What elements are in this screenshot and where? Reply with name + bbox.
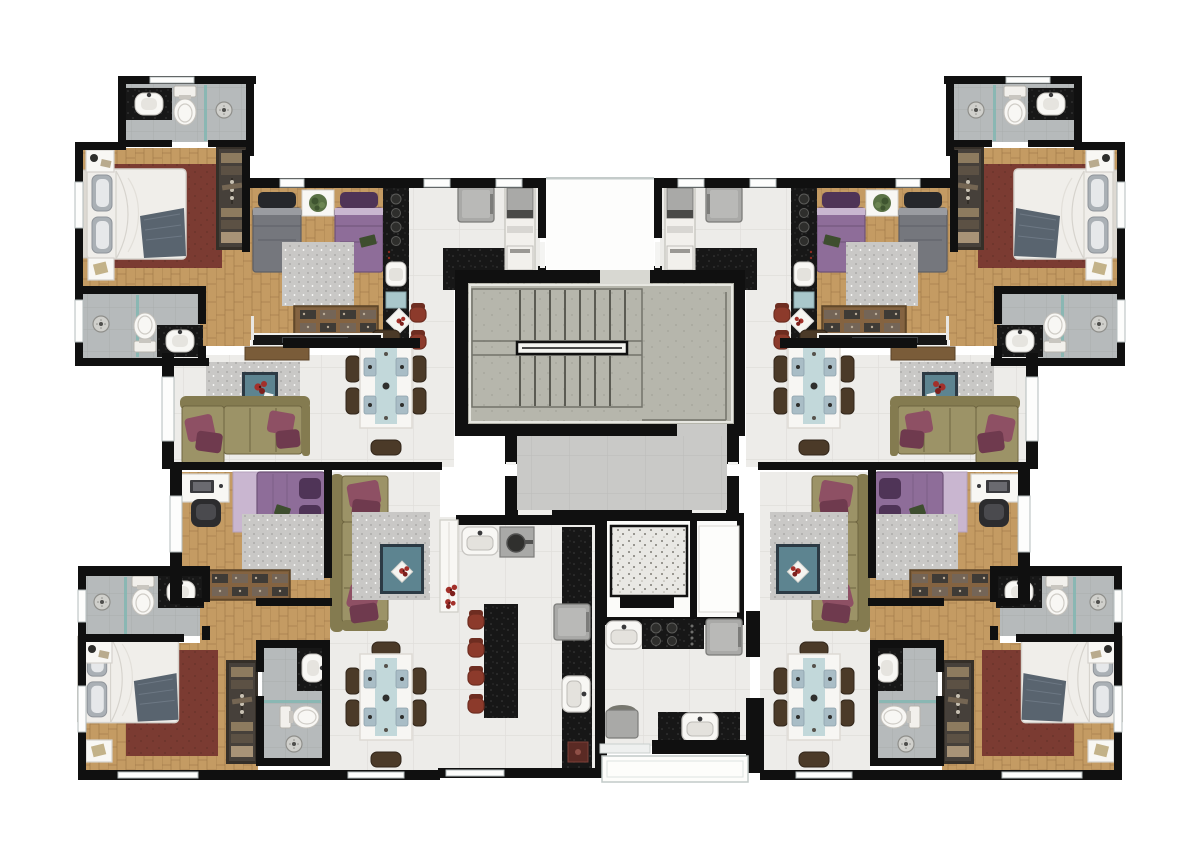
kitchen-island	[484, 604, 518, 718]
fridge	[706, 619, 742, 655]
shower-head	[286, 736, 302, 752]
stair-hall-opening	[677, 424, 727, 436]
service-shaft	[699, 526, 739, 612]
corridor-floor	[200, 604, 330, 642]
toilet	[174, 86, 196, 125]
balcony	[602, 756, 748, 782]
toilet	[132, 576, 154, 615]
washer	[606, 705, 638, 738]
threshold	[600, 744, 650, 753]
nightstand	[86, 150, 114, 172]
nightstand	[84, 641, 112, 663]
window	[446, 770, 504, 776]
toilet	[280, 706, 319, 728]
dish-rack	[386, 292, 406, 308]
washer-column	[505, 184, 535, 276]
fridge	[554, 604, 590, 640]
toilet	[134, 313, 156, 352]
counter-sink	[562, 676, 590, 712]
stair-door-opening	[600, 270, 650, 284]
vanity-sink	[126, 88, 172, 120]
floorplan-canvas	[0, 0, 1200, 843]
bar-stool	[410, 303, 426, 322]
door-leaf	[540, 242, 545, 268]
tile-accent	[263, 700, 321, 703]
oven-window	[575, 749, 581, 755]
kitchen-sink	[606, 621, 642, 649]
counter-sink	[682, 713, 718, 741]
corridor-window-line	[546, 177, 654, 180]
shower-head	[94, 594, 110, 610]
tile-accent	[204, 85, 207, 141]
elevator-cab-floor	[611, 526, 687, 596]
gray-rug	[282, 242, 354, 306]
double-bed	[82, 169, 186, 259]
elevator-door	[620, 596, 674, 608]
shoe-dresser	[206, 570, 290, 600]
wardrobe	[226, 660, 258, 764]
console	[245, 347, 309, 360]
sofa	[180, 396, 310, 464]
shower-head	[216, 102, 232, 118]
fridge	[458, 186, 494, 222]
entry-corridor-floor	[546, 178, 654, 278]
hall-floor	[517, 436, 727, 512]
cooktop	[500, 527, 534, 557]
door-leaf	[506, 462, 516, 465]
white-cabinet	[440, 520, 458, 612]
pouf	[88, 258, 114, 280]
shower-head	[93, 316, 109, 332]
door-leaf	[728, 462, 738, 465]
door-leaf	[251, 316, 254, 340]
kitchen-counter	[562, 527, 592, 768]
tile-accent	[124, 577, 127, 635]
pouf	[86, 740, 112, 762]
vanity-sink	[157, 325, 203, 357]
plant	[309, 194, 327, 212]
shaft-divider	[690, 521, 697, 617]
coffee-table	[380, 544, 424, 594]
floorplan-page	[0, 0, 1200, 843]
entry-floor	[408, 278, 454, 368]
sink-basin	[389, 268, 403, 281]
kitchen-sink	[462, 527, 498, 555]
shoe-dresser	[294, 306, 378, 336]
